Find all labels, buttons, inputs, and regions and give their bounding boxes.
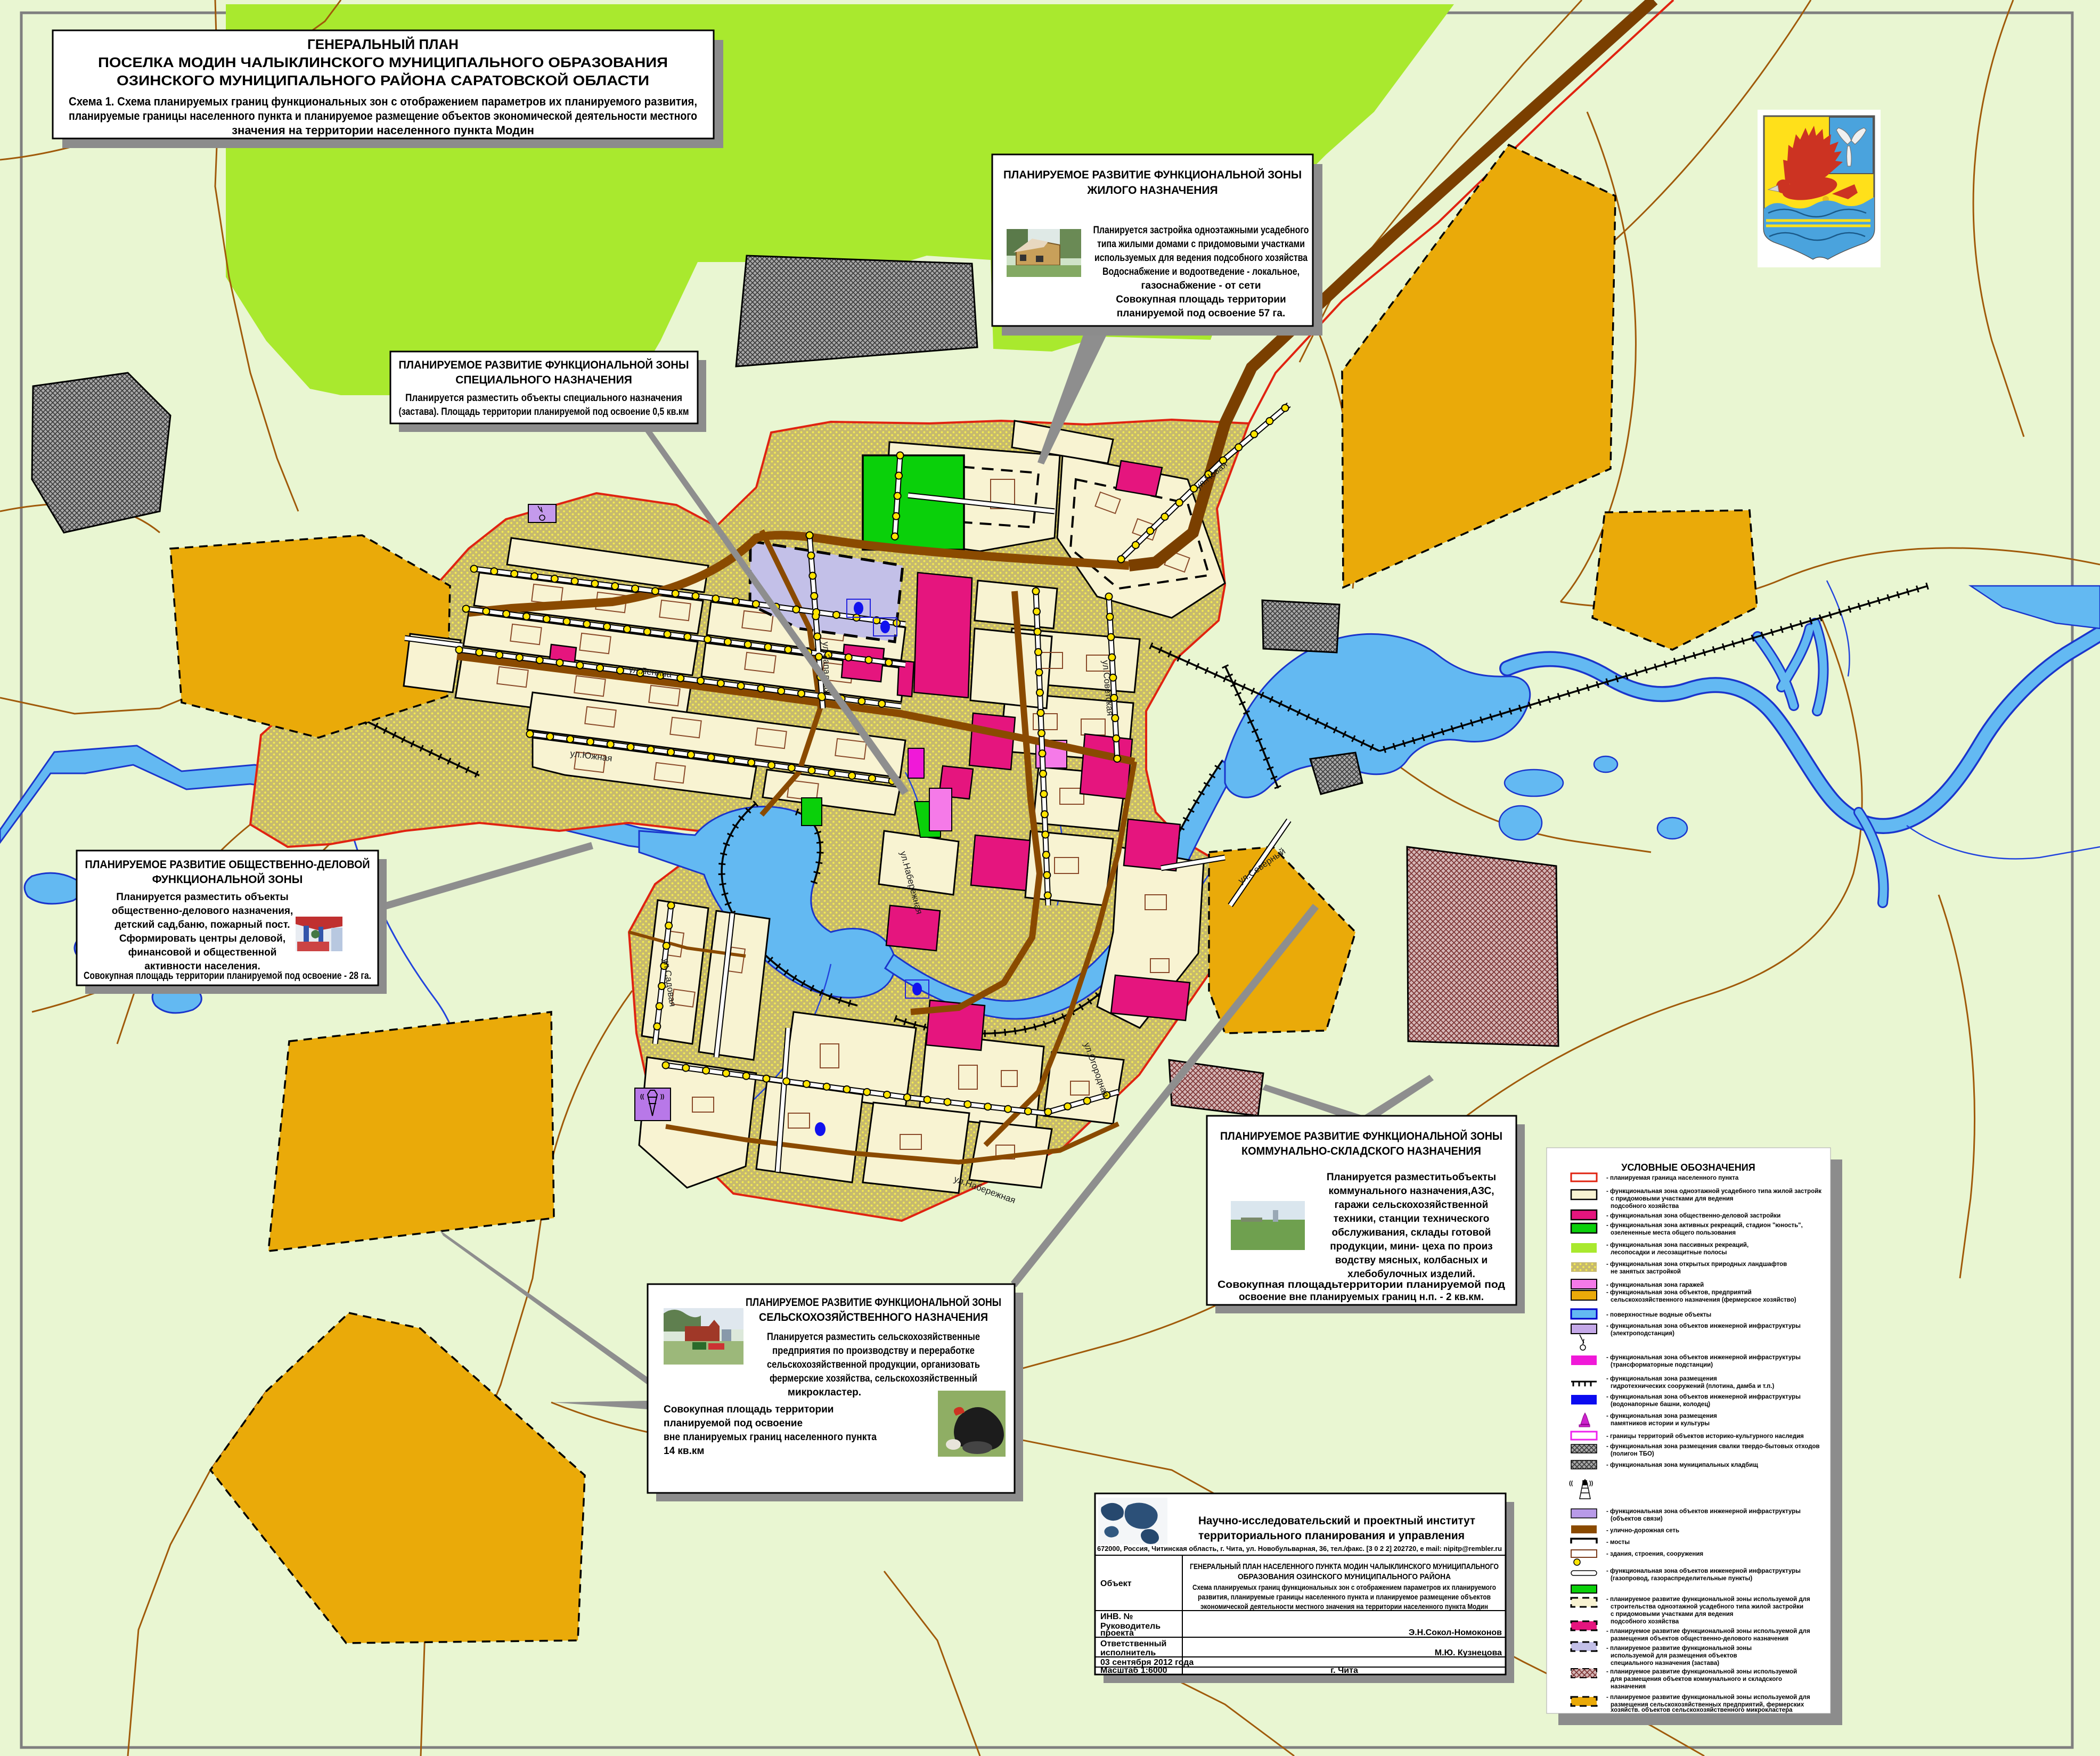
svg-text:исполнитель: исполнитель (1100, 1648, 1156, 1657)
svg-text:- функциональная зона объектов: - функциональная зона объектов инженерно… (1606, 1394, 1801, 1400)
svg-text:детский сад,баню, пожарный пос: детский сад,баню, пожарный пост. (115, 919, 290, 930)
svg-text:Схема 1. Схема планируемых гра: Схема 1. Схема планируемых границ функци… (69, 95, 697, 108)
svg-text:вне планируемых границ населен: вне планируемых границ населенного пункт… (664, 1432, 877, 1443)
svg-text:не занятых застройкой: не занятых застройкой (1611, 1269, 1681, 1275)
svg-text:ЖИЛОГО НАЗНАЧЕНИЯ: ЖИЛОГО НАЗНАЧЕНИЯ (1086, 184, 1217, 197)
svg-text:ПОСЕЛКА МОДИН ЧАЛЫКЛИНСКОГО МУ: ПОСЕЛКА МОДИН ЧАЛЫКЛИНСКОГО МУНИЦИПАЛЬНО… (98, 54, 668, 70)
svg-text:- здания, строения, сооружения: - здания, строения, сооружения (1606, 1551, 1703, 1557)
svg-text:подсобного хозяйства: подсобного хозяйства (1611, 1203, 1679, 1210)
svg-text:СЕЛЬСКОХОЗЯЙСТВЕННОГО НАЗНАЧЕН: СЕЛЬСКОХОЗЯЙСТВЕННОГО НАЗНАЧЕНИЯ (759, 1311, 988, 1324)
svg-text:- планируемое развитие функцио: - планируемое развитие функциональной зо… (1606, 1694, 1810, 1701)
svg-text:водству мясных, колбасных и: водству мясных, колбасных и (1335, 1255, 1488, 1266)
svg-text:- планируемая граница населенн: - планируемая граница населенного пункта (1606, 1175, 1739, 1181)
svg-text:СПЕЦИАЛЬНОГО НАЗНАЧЕНИЯ: СПЕЦИАЛЬНОГО НАЗНАЧЕНИЯ (455, 374, 632, 386)
svg-text:- функциональная зона объектов: - функциональная зона объектов инженерно… (1606, 1354, 1801, 1361)
svg-text:планируемой под освоение: планируемой под освоение (664, 1418, 803, 1429)
svg-text:(объектов связи): (объектов связи) (1611, 1516, 1663, 1522)
svg-text:территориального планирования: территориального планирования и управлен… (1198, 1530, 1465, 1542)
svg-text:Масштаб 1:6000: Масштаб 1:6000 (1100, 1666, 1167, 1675)
svg-text:- функциональная зона размещен: - функциональная зона размещения (1606, 1413, 1717, 1419)
svg-text:- функциональная зона гаражей: - функциональная зона гаражей (1606, 1282, 1704, 1288)
svg-text:672000, Россия, Читинская о: 672000, Россия, Читинская область, г. Чи… (1097, 1545, 1502, 1553)
svg-text:- планируемое развитие функцио: - планируемое развитие функциональной зо… (1606, 1596, 1810, 1603)
svg-text:сельскохозяйственного назначен: сельскохозяйственного назначения (фермер… (1611, 1297, 1796, 1303)
svg-text:ГЕНЕРАЛЬНЫЙ ПЛАН НАСЕЛЕННОГО П: ГЕНЕРАЛЬНЫЙ ПЛАН НАСЕЛЕННОГО ПУНКТА МОДИ… (1190, 1562, 1499, 1571)
svg-text:Совокупная площадьтерритории п: Совокупная площадьтерритории планируемой… (1217, 1279, 1505, 1291)
svg-text:- функциональная зона объектов: - функциональная зона объектов инженерно… (1606, 1568, 1801, 1574)
svg-text:ПЛАНИРУЕМОЕ РАЗВИТИЕ ФУНКЦИОНА: ПЛАНИРУЕМОЕ РАЗВИТИЕ ФУНКЦИОНАЛЬНОЙ ЗОНЫ (1003, 168, 1302, 181)
svg-text:проекта: проекта (1100, 1629, 1134, 1638)
svg-text:Планируется разместитьобъекты: Планируется разместитьобъекты (1327, 1172, 1496, 1183)
svg-text:- функциональная зона обществе: - функциональная зона общественно-делово… (1606, 1213, 1780, 1219)
svg-text:Сформировать центры деловой,: Сформировать центры деловой, (119, 933, 285, 944)
svg-text:значения на территории насел: значения на территории населенного пункт… (232, 124, 534, 137)
svg-text:- планируемое развитие функцио: - планируемое развитие функциональной зо… (1606, 1669, 1797, 1675)
svg-text:Схема планируемых границ функц: Схема планируемых границ функциональных … (1192, 1583, 1496, 1591)
svg-text:гидротехнических сооружений (п: гидротехнических сооружений (плотина, да… (1611, 1383, 1775, 1390)
svg-text:(водонапорные башни, колодец): (водонапорные башни, колодец) (1611, 1401, 1710, 1408)
svg-text:предприятия по производству и: предприятия по производству и переработк… (772, 1345, 975, 1357)
svg-text:(застава). Площадь территории: (застава). Площадь территории планируемо… (399, 406, 689, 418)
svg-text:- мосты: - мосты (1606, 1539, 1630, 1546)
svg-text:озелененные места общего польз: озелененные места общего пользования (1611, 1230, 1736, 1236)
svg-text:с придомовыми участками для ве: с придомовыми участками для ведения (1611, 1611, 1734, 1618)
svg-text:- функциональная зона объектов: - функциональная зона объектов инженерно… (1606, 1508, 1801, 1515)
svg-text:г. Чита: г. Чита (1330, 1666, 1358, 1675)
svg-text:Планируется разместить объекты: Планируется разместить объекты (116, 892, 289, 903)
svg-text:обслуживания, склады готовой: обслуживания, склады готовой (1332, 1227, 1491, 1238)
svg-text:М.Ю. Кузнецова: М.Ю. Кузнецова (1435, 1648, 1502, 1657)
svg-text:ПЛАНИРУЕМОЕ РАЗВИТИЕ ФУНКЦИОНА: ПЛАНИРУЕМОЕ РАЗВИТИЕ ФУНКЦИОНАЛЬНОЙ ЗОНЫ (399, 358, 689, 371)
svg-text:Планируется разместить объекты: Планируется разместить объекты специальн… (405, 393, 682, 404)
svg-text:назначения: назначения (1611, 1684, 1646, 1690)
svg-text:- поверхностные водные объекты: - поверхностные водные объекты (1606, 1312, 1711, 1318)
svg-text:УСЛОВНЫЕ ОБОЗНАЧЕНИЯ: УСЛОВНЫЕ ОБОЗНАЧЕНИЯ (1621, 1162, 1755, 1173)
svg-text:хлебобулочных изделий.: хлебобулочных изделий. (1347, 1269, 1475, 1280)
svg-text:- планируемое развитие функцио: - планируемое развитие функциональной зо… (1606, 1628, 1810, 1635)
svg-text:(полигон ТБО): (полигон ТБО) (1611, 1451, 1654, 1457)
svg-text:- функциональная зона активных: - функциональная зона активных рекреаций… (1606, 1222, 1803, 1229)
svg-text:ПЛАНИРУЕМОЕ РАЗВИТИЕ ФУНКЦИОНА: ПЛАНИРУЕМОЕ РАЗВИТИЕ ФУНКЦИОНАЛЬНОЙ ЗОНЫ (746, 1296, 1001, 1309)
svg-text:Совокупная площадь территории: Совокупная площадь территории (664, 1404, 834, 1415)
svg-text:лесопосадки и лесозащитные пол: лесопосадки и лесозащитные полосы (1611, 1249, 1727, 1256)
svg-text:Объект: Объект (1100, 1579, 1132, 1588)
svg-text:газоснабжение - от сети: газоснабжение - от сети (1141, 280, 1261, 291)
svg-text:используемой для размещения об: используемой для размещения объектов (1611, 1653, 1737, 1659)
svg-text:Совокупная площадь территории: Совокупная площадь территории планируемо… (84, 970, 371, 982)
svg-text:планируемые границы населенног: планируемые границы населенного пункта и… (69, 109, 697, 122)
svg-text:продукции, мини- цеха по произ: продукции, мини- цеха по произ (1330, 1241, 1492, 1252)
svg-text:КОММУНАЛЬНО-СКЛАДСКОГО НАЗНАЧЕ: КОММУНАЛЬНО-СКЛАДСКОГО НАЗНАЧЕНИЯ (1241, 1145, 1481, 1157)
svg-text:- функциональная зона муниципа: - функциональная зона муниципальных клад… (1606, 1462, 1758, 1468)
svg-text:Ответственный: Ответственный (1100, 1639, 1166, 1648)
svg-text:специального назначения (заста: специального назначения (застава) (1611, 1660, 1719, 1667)
svg-text:- границы территорий объектов: - границы территорий объектов историко-к… (1606, 1433, 1804, 1440)
svg-text:используемых для ведения подсо: используемых для ведения подсобного хозя… (1094, 252, 1308, 264)
svg-text:строительства одноэтажной усад: строительства одноэтажной усадебного тип… (1611, 1604, 1803, 1610)
svg-text:подсобного хозяйства: подсобного хозяйства (1611, 1619, 1679, 1625)
svg-text:Э.Н.Сокол-Номоконов: Э.Н.Сокол-Номоконов (1409, 1628, 1502, 1637)
svg-text:(электроподстанция): (электроподстанция) (1611, 1330, 1674, 1337)
svg-text:)): )) (1589, 1480, 1594, 1487)
svg-text:(газопровод, газораспределите: (газопровод, газораспределительные пункт… (1611, 1575, 1752, 1582)
svg-text:сельскохозяйственной продукции: сельскохозяйственной продукции, организо… (767, 1359, 980, 1370)
svg-text:ПЛАНИРУЕМОЕ РАЗВИТИЕ ФУНКЦИОНА: ПЛАНИРУЕМОЕ РАЗВИТИЕ ФУНКЦИОНАЛЬНОЙ ЗОНЫ (1220, 1130, 1502, 1142)
svg-text:коммунального назначения,АЗС,: коммунального назначения,АЗС, (1328, 1186, 1494, 1197)
svg-text:Научно-исследовательский и п: Научно-исследовательский и проектный инс… (1198, 1515, 1475, 1527)
svg-text:ОЗИНСКОГО МУНИЦИПАЛЬНОГО РАЙОН: ОЗИНСКОГО МУНИЦИПАЛЬНОГО РАЙОНА САРАТОВС… (117, 72, 649, 88)
svg-text:- функциональная зона одноэтаж: - функциональная зона одноэтажной усадеб… (1606, 1188, 1821, 1195)
svg-text:- функциональная зона объектов: - функциональная зона объектов, предприя… (1606, 1289, 1752, 1296)
svg-text:((: (( (1569, 1480, 1573, 1487)
svg-text:гаражи сельскохозяйственной: гаражи сельскохозяйственной (1335, 1199, 1489, 1211)
svg-text:экономической деятельности мес: экономической деятельности местного знач… (1200, 1602, 1488, 1611)
svg-text:размещения объектов общественн: размещения объектов общественно-делового… (1611, 1636, 1788, 1642)
svg-text:развития, планируемые границы: развития, планируемые границы населенног… (1198, 1592, 1491, 1601)
svg-text:((: (( (640, 1093, 644, 1100)
svg-text:Планируется разместить сельско: Планируется разместить сельскохозяйствен… (767, 1332, 980, 1343)
svg-text:ОБРАЗОВАНИЯ ОЗИНСКОГО МУНИЦИПА: ОБРАЗОВАНИЯ ОЗИНСКОГО МУНИЦИПАЛЬНОГО РАЙ… (1238, 1572, 1451, 1581)
svg-text:ПЛАНИРУЕМОЕ РАЗВИТИЕ ОБЩЕСТВЕН: ПЛАНИРУЕМОЕ РАЗВИТИЕ ОБЩЕСТВЕННО-ДЕЛОВОЙ (85, 858, 370, 871)
svg-text:ГЕНЕРАЛЬНЫЙ ПЛАН: ГЕНЕРАЛЬНЫЙ ПЛАН (307, 36, 459, 52)
svg-text:- функциональная зона пассивны: - функциональная зона пассивных рекреаци… (1606, 1242, 1748, 1248)
svg-text:14 кв.км: 14 кв.км (664, 1445, 704, 1457)
svg-text:с придомовыми участками для ве: с придомовыми участками для ведения (1611, 1196, 1734, 1202)
svg-text:ИНВ. №: ИНВ. № (1100, 1612, 1133, 1621)
svg-text:Водоснабжение и водоотведение: Водоснабжение и водоотведение - локально… (1102, 266, 1300, 277)
svg-text:хозяйств. объектов сельскохозя: хозяйств. объектов сельскохозяйственного… (1611, 1707, 1793, 1713)
svg-text:памятников истории и культуры: памятников истории и культуры (1611, 1420, 1710, 1427)
svg-text:Совокупная площадь территории: Совокупная площадь территории (1116, 294, 1286, 305)
svg-text:типа жилыми домами с придомовы: типа жилыми домами с придомовыми участка… (1097, 239, 1305, 250)
svg-text:техники, станции технического: техники, станции технического (1334, 1213, 1490, 1224)
svg-text:финансовой и общественной: финансовой и общественной (128, 947, 277, 958)
svg-text:общественно-делового назначени: общественно-делового назначения, (112, 905, 293, 917)
svg-text:Планируется застройка одноэтаж: Планируется застройка одноэтажными усаде… (1093, 225, 1309, 236)
svg-text:освоение вне планируемых грани: освоение вне планируемых границ н.п. - 2… (1239, 1292, 1484, 1303)
svg-text:(трансформаторные подстанции): (трансформаторные подстанции) (1611, 1362, 1713, 1368)
svg-text:планируемой под освоение 57 га: планируемой под освоение 57 га. (1117, 308, 1286, 319)
svg-text:для размещения объектов коммун: для размещения объектов коммунального и … (1611, 1676, 1782, 1683)
svg-text:ФУНКЦИОНАЛЬНОЙ ЗОНЫ: ФУНКЦИОНАЛЬНОЙ ЗОНЫ (152, 873, 303, 886)
svg-text:)): )) (660, 1093, 665, 1100)
svg-text:- планируемое развитие функцио: - планируемое развитие функциональной зо… (1606, 1645, 1752, 1652)
svg-text:- функциональная зона размещен: - функциональная зона размещения (1606, 1376, 1717, 1382)
svg-text:микрокластер.: микрокластер. (788, 1387, 861, 1398)
svg-text:фермерские хозяйства, сельско: фермерские хозяйства, сельскохозяйственн… (770, 1373, 977, 1384)
svg-text:- функциональная зона размещен: - функциональная зона размещения свалки … (1606, 1443, 1820, 1450)
svg-text:- функциональная зона объектов: - функциональная зона объектов инженерно… (1606, 1323, 1801, 1329)
svg-text:- улично-дорожная сеть: - улично-дорожная сеть (1606, 1528, 1679, 1534)
svg-text:- функциональная зона открытых: - функциональная зона открытых природных… (1606, 1261, 1787, 1268)
